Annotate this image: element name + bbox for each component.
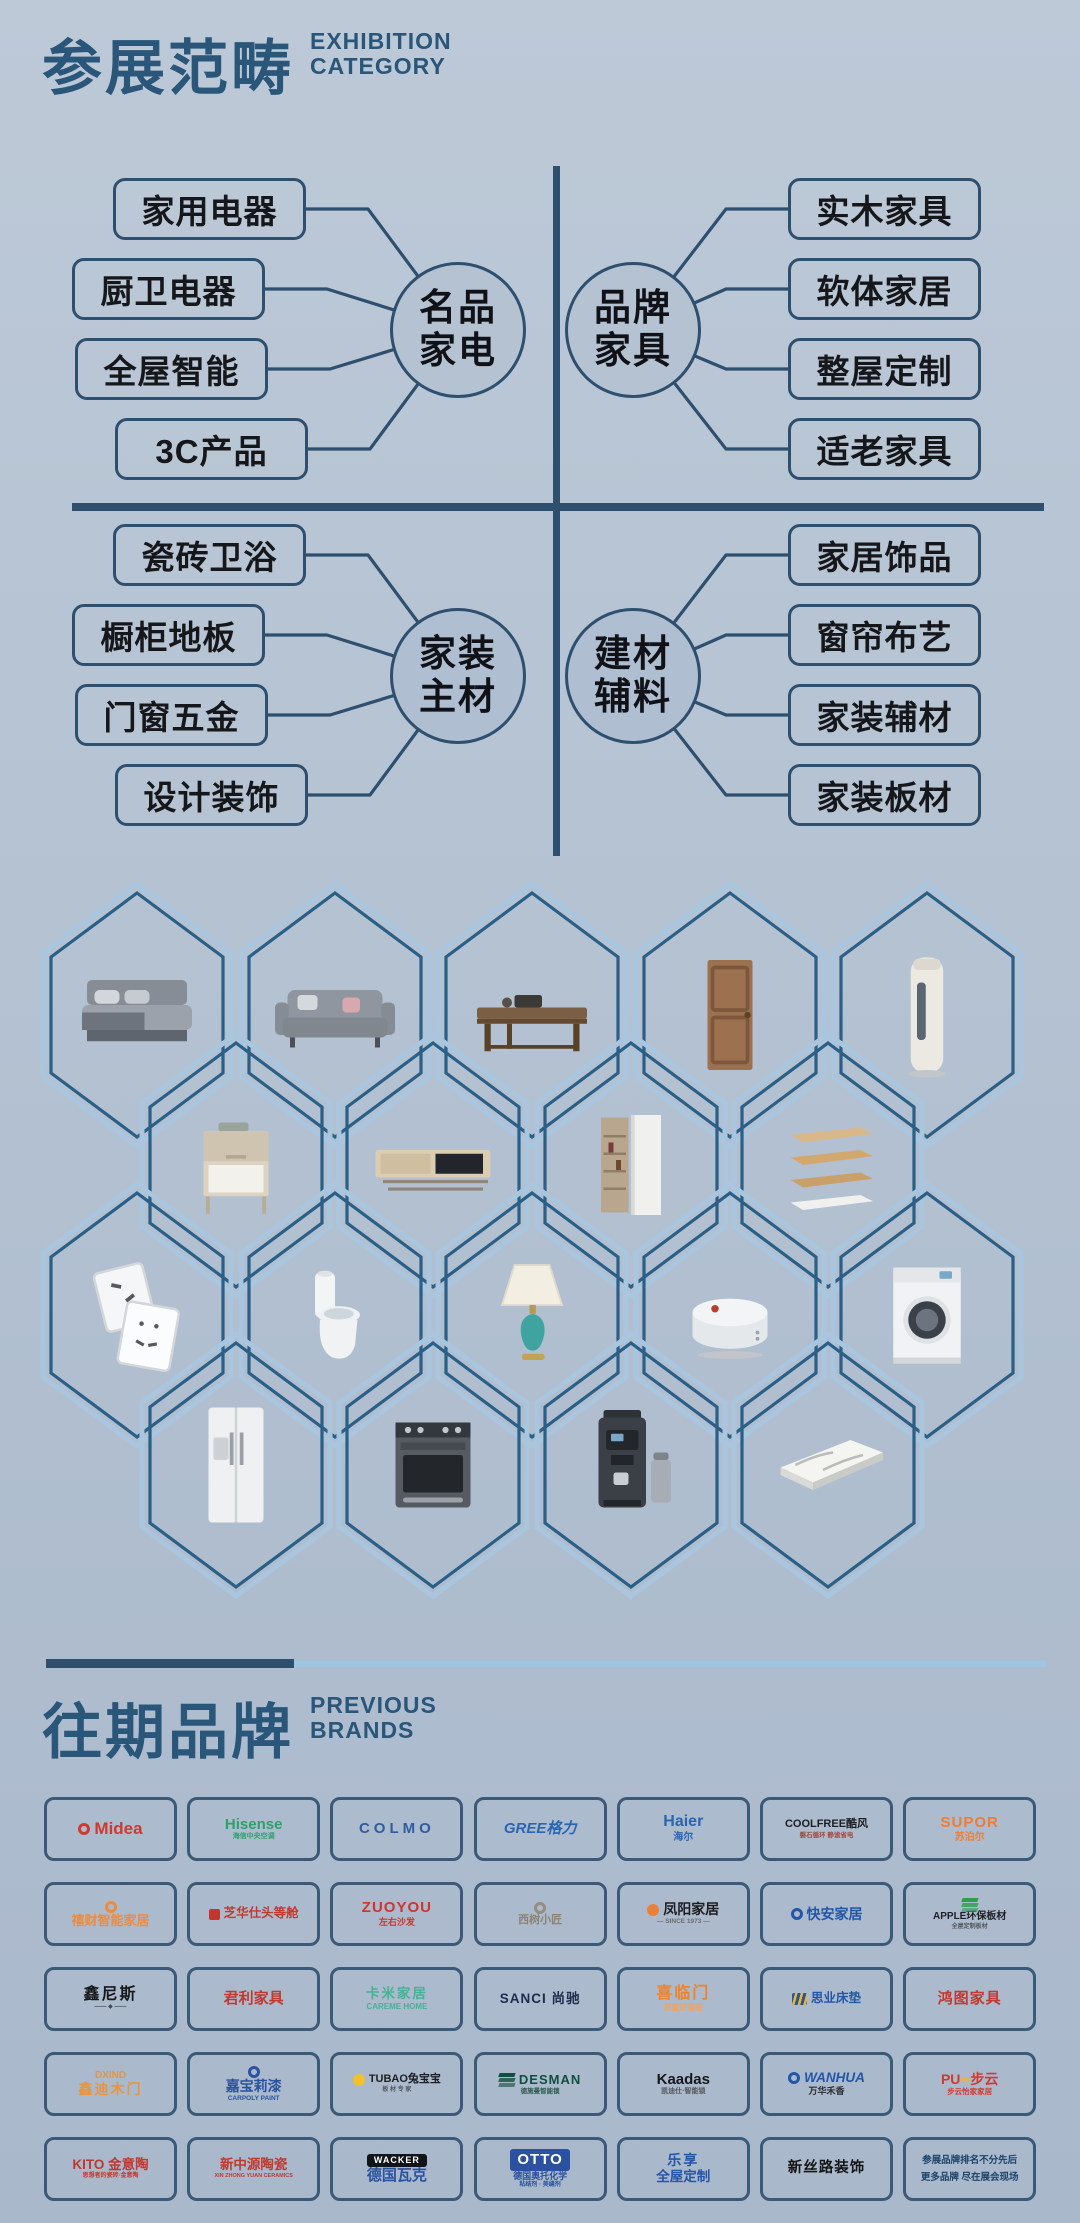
- category-box: 全屋智能: [75, 338, 268, 400]
- brand-main-text: WANHUA: [804, 2071, 865, 2085]
- brand-main-text: 西树小匠: [518, 1915, 562, 1927]
- brand-sub-text: —— ◆ ——: [95, 2004, 127, 2011]
- brand-main-text: 德国奥托化学: [513, 2172, 567, 2181]
- brand-main-text: 德国瓦克: [367, 2168, 427, 2184]
- category-box: 适老家具: [788, 418, 981, 480]
- category-box: 家装板材: [788, 764, 981, 826]
- brand-main-text: Midea: [94, 1820, 142, 1838]
- brand-puyun: PU∞步云步云怡家家居: [903, 2052, 1036, 2116]
- brand-midea: Midea: [44, 1797, 177, 1861]
- category-circle: 品牌家具: [565, 262, 701, 398]
- brand-sub-text: XIN ZHONG YUAN CERAMICS: [214, 2173, 292, 2179]
- brand-xinnisi: 鑫尼斯—— ◆ ——: [44, 1967, 177, 2031]
- brand-sub-text: — SINCE 1973 —: [657, 1918, 710, 1925]
- brand-carpoly-mark-icon: [248, 2066, 260, 2078]
- brand-apple-bancai-mark-icon: [962, 1898, 978, 1912]
- brand-zuoyou: ZUOYOU左右沙发: [330, 1882, 463, 1946]
- category-circle: 家装主材: [390, 608, 526, 744]
- brand-siye: 思业床垫: [760, 1967, 893, 2031]
- brand-hongtu: 鸿图家具: [903, 1967, 1036, 2031]
- brand-apple-bancai: APPLE环保板材全屋定制板材: [903, 1882, 1036, 1946]
- brand-tubao: TUBAO兔宝宝板 材 专 家: [330, 2052, 463, 2116]
- brand-sub-text: 全屋定制: [656, 2169, 710, 2185]
- brand-xicai-mark-icon: [105, 1901, 117, 1913]
- exhibition-category-header: 参展范畴 EXHIBITION CATEGORY: [42, 20, 452, 107]
- brand-kuaian: 快安家居: [760, 1882, 893, 1946]
- category-box: 3C产品: [115, 418, 308, 480]
- brand-kuaian-mark-icon: [791, 1908, 803, 1920]
- category-box: 橱柜地板: [72, 604, 265, 666]
- brand-main-text: 卡米家居: [366, 1987, 428, 2001]
- brand-midea-mark-icon: [78, 1823, 90, 1835]
- brand-footnote: 参展品牌排名不分先后更多品牌 尽在展会现场: [903, 2137, 1036, 2201]
- brand-sub-text: 海尔: [673, 1832, 693, 1844]
- brand-wanhua-mark-icon: [788, 2072, 800, 2084]
- category-box: 家居饰品: [788, 524, 981, 586]
- brand-sub-text: 板 材 专 家: [382, 2087, 411, 2094]
- brand-main-text: 君利家具: [224, 1991, 284, 2007]
- brand-kaadas: Kaadas凯迪仕·智能锁: [617, 2052, 750, 2116]
- brand-main-text: SANCI 尚驰: [500, 1992, 581, 2006]
- brand-sub-text: 左右沙发: [379, 1917, 415, 1927]
- brand-main-text: KITO 金意陶: [72, 2158, 148, 2172]
- brand-main-text: Haier: [663, 1814, 703, 1831]
- brand-sub-text: CARPOLY PAINT: [228, 2095, 280, 2102]
- brand-lexiang: 乐享全屋定制: [617, 2137, 750, 2201]
- brand-dxind: DXIND鑫迪木门: [44, 2052, 177, 2116]
- category-box: 窗帘布艺: [788, 604, 981, 666]
- brand-sanci: SANCI 尚驰: [474, 1967, 607, 2031]
- previous-brands-header: 往期品牌 PREVIOUS BRANDS: [42, 1684, 437, 1771]
- refrigerator-icon: [161, 1368, 311, 1563]
- brand-main-text: 鸿图家具: [938, 1991, 1002, 2007]
- category-circle: 名品家电: [390, 262, 526, 398]
- category-box: 瓷砖卫浴: [113, 524, 306, 586]
- footnote-line: 参展品牌排名不分先后: [922, 2153, 1017, 2168]
- brand-coolfree: COOLFREE酷风磐石循环 静谧省电: [760, 1797, 893, 1861]
- brand-main-text: 禧财智能家居: [71, 1914, 149, 1928]
- brand-fengyang: 凤阳家居— SINCE 1973 —: [617, 1882, 750, 1946]
- brand-tubao-mark-icon: [353, 2074, 365, 2086]
- brand-main-text: 乐享: [667, 2153, 699, 2168]
- brand-main-text: 新丝路装饰: [788, 2161, 866, 2176]
- brand-hisense: Hisense海信中央空调: [187, 1797, 320, 1861]
- brand-main-text: ZUOYOU: [362, 1900, 432, 1916]
- brand-siye-mark-icon: [792, 1993, 807, 2005]
- brand-desman-mark-icon: [499, 2073, 515, 2087]
- category-box: 厨卫电器: [72, 258, 265, 320]
- brand-sub-text: 粘结剂 · 美缝剂: [519, 2182, 560, 2189]
- brand-main-text: 嘉宝莉漆: [226, 2079, 282, 2094]
- brand-zhihuashi: 芝华仕头等舱: [187, 1882, 320, 1946]
- brand-otto: OTTO德国奥托化学粘结剂 · 美缝剂: [474, 2137, 607, 2201]
- brand-main-text: COOLFREE酷风: [785, 1819, 868, 1831]
- brand-main-text: 鑫迪木门: [79, 2082, 143, 2097]
- hexagon-item: [138, 1330, 334, 1600]
- brand-sub-text: 海信中央空调: [233, 1833, 275, 1841]
- brand-xilinmen: 喜临门深度好睡眠: [617, 1967, 750, 2031]
- brand-main-text: APPLE环保板材: [933, 1912, 1006, 1923]
- hexagon-item: [335, 1330, 531, 1600]
- brand-junli: 君利家具: [187, 1967, 320, 2031]
- brand-fengyang-mark-icon: [647, 1904, 659, 1916]
- brand-zhihuashi-mark-icon: [209, 1909, 220, 1920]
- brand-kito: KITO 金意陶思想者的瓷砖·金意陶: [44, 2137, 177, 2201]
- category-box: 门窗五金: [75, 684, 268, 746]
- brand-main-text: 快安家居: [807, 1907, 863, 1922]
- page-title: 参展范畴: [42, 20, 294, 107]
- brand-main-text: GREE格力: [504, 1821, 577, 1837]
- category-box: 整屋定制: [788, 338, 981, 400]
- brand-main-text: PU∞步云: [941, 2072, 998, 2087]
- brand-carpoly: 嘉宝莉漆CARPOLY PAINT: [187, 2052, 320, 2116]
- coffee-machine-icon: [556, 1368, 706, 1563]
- brand-wacker-mark-icon: WACKER: [367, 2154, 427, 2168]
- stone-slab-icon: [753, 1368, 903, 1563]
- brand-sub-text: 万华禾香: [808, 2086, 844, 2096]
- brand-main-text: TUBAO兔宝宝: [369, 2074, 441, 2086]
- brand-sub-text: 步云怡家家居: [947, 2088, 992, 2097]
- brand-sub-text: 凯迪仕·智能锁: [661, 2088, 705, 2096]
- brand-main-text: 芝华仕头等舱: [224, 1907, 299, 1920]
- brand-wacker: WACKER德国瓦克: [330, 2137, 463, 2201]
- brand-main-text: SUPOR: [941, 1815, 999, 1831]
- brand-otto-mark-icon: OTTO: [510, 2149, 569, 2171]
- brand-kami: 卡米家居CAREME HOME: [330, 1967, 463, 2031]
- brand-colmo: COLMO: [330, 1797, 463, 1861]
- brand-main-text: Kaadas: [657, 2072, 710, 2088]
- hexagon-item: [730, 1330, 926, 1600]
- poster-canvas: 参展范畴 EXHIBITION CATEGORY 家用电器厨卫电器全屋智能3C产…: [0, 0, 1080, 2223]
- brand-main-text: 鑫尼斯: [83, 1987, 137, 2004]
- brand-xishuxiaojiang: 西树小匠: [474, 1882, 607, 1946]
- brand-sub-text: 全屋定制板材: [952, 1924, 988, 1931]
- brand-main-text: Hisense: [225, 1817, 283, 1833]
- brand-main-text: 喜临门: [656, 1986, 710, 2003]
- brand-main-text: 新中源陶瓷: [220, 2158, 288, 2172]
- brand-main-text: DESMAN: [519, 2073, 581, 2087]
- category-box: 家装辅材: [788, 684, 981, 746]
- brand-sub-text: 深度好睡眠: [663, 2003, 703, 2012]
- oven-icon: [358, 1368, 508, 1563]
- brand-xinsilu: 新丝路装饰: [760, 2137, 893, 2201]
- brand-gree: GREE格力: [474, 1797, 607, 1861]
- brand-main-text: 凤阳家居: [663, 1902, 719, 1917]
- brands-title-en: PREVIOUS BRANDS: [310, 1693, 437, 1744]
- category-box: 软体家居: [788, 258, 981, 320]
- brands-title: 往期品牌: [42, 1684, 294, 1771]
- brand-sub-text: 苏泊尔: [955, 1832, 985, 1844]
- brand-wanhua: WANHUA万华禾香: [760, 2052, 893, 2116]
- brand-top-text: DXIND: [95, 2071, 126, 2081]
- brand-sub-text: 德施曼智能锁: [521, 2088, 560, 2095]
- brand-xishuxiaojiang-mark-icon: [534, 1902, 546, 1914]
- brand-sub-text: 磐石循环 静谧省电: [800, 1832, 854, 1839]
- page-title-en: EXHIBITION CATEGORY: [310, 29, 452, 80]
- category-box: 设计装饰: [115, 764, 308, 826]
- brand-haier: Haier海尔: [617, 1797, 750, 1861]
- brand-supor: SUPOR苏泊尔: [903, 1797, 1036, 1861]
- footnote-line: 更多品牌 尽在展会现场: [921, 2170, 1019, 2185]
- brand-sub-text: CAREME HOME: [366, 2002, 427, 2011]
- brand-xicai: 禧财智能家居: [44, 1882, 177, 1946]
- brand-main-text: COLMO: [359, 1821, 435, 1837]
- brand-sub-text: 思想者的瓷砖·金意陶: [83, 2173, 139, 2180]
- hexagon-item: [533, 1330, 729, 1600]
- brand-xinzhongyuan: 新中源陶瓷XIN ZHONG YUAN CERAMICS: [187, 2137, 320, 2201]
- category-circle: 建材辅料: [565, 608, 701, 744]
- brand-desman: DESMAN德施曼智能锁: [474, 2052, 607, 2116]
- brand-main-text: 思业床垫: [811, 1992, 861, 2005]
- category-box: 家用电器: [113, 178, 306, 240]
- category-box: 实木家具: [788, 178, 981, 240]
